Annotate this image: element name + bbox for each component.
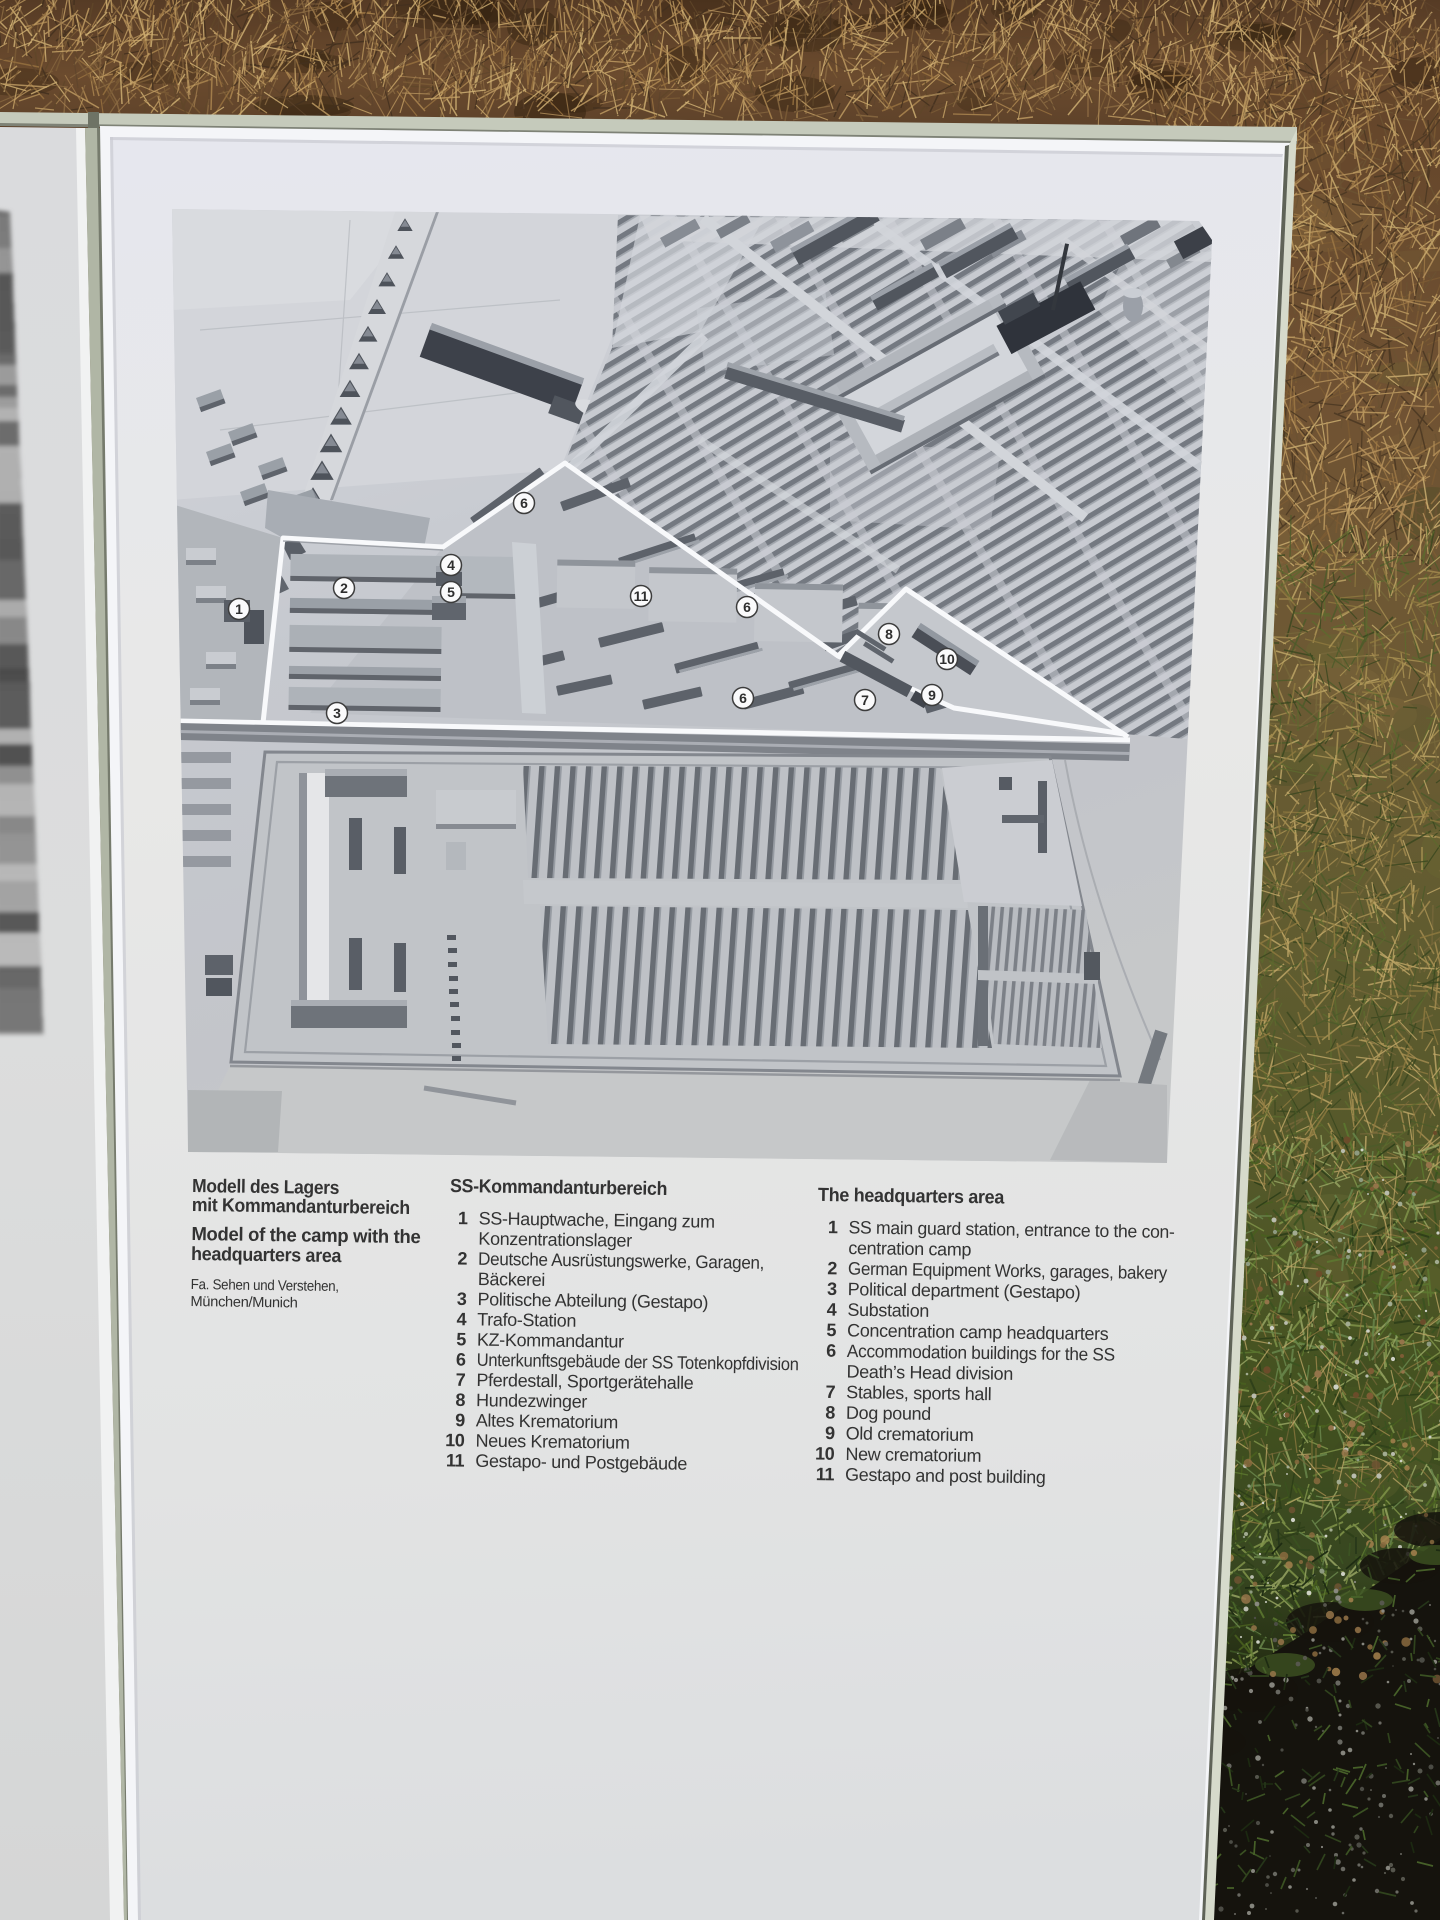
svg-text:Death’s Head division: Death’s Head division xyxy=(846,1362,1013,1384)
svg-text:KZ-Kommandantur: KZ-Kommandantur xyxy=(477,1330,624,1352)
svg-text:Stables, sports hall: Stables, sports hall xyxy=(846,1382,991,1404)
svg-text:10: 10 xyxy=(445,1430,465,1450)
svg-text:mit Kommandanturbereich: mit Kommandanturbereich xyxy=(192,1195,410,1219)
svg-text:7: 7 xyxy=(456,1370,466,1390)
svg-text:11: 11 xyxy=(816,1464,835,1484)
svg-text:headquarters area: headquarters area xyxy=(191,1244,342,1267)
svg-text:3: 3 xyxy=(827,1279,837,1299)
svg-text:3: 3 xyxy=(333,705,341,721)
svg-text:New crematorium: New crematorium xyxy=(845,1444,981,1466)
svg-text:11: 11 xyxy=(446,1450,465,1470)
svg-text:9: 9 xyxy=(825,1423,835,1443)
svg-text:8: 8 xyxy=(455,1390,465,1410)
svg-text:Konzentrationslager: Konzentrationslager xyxy=(478,1229,632,1251)
svg-text:2: 2 xyxy=(827,1258,837,1278)
svg-text:Hundezwinger: Hundezwinger xyxy=(476,1390,587,1412)
svg-text:centration camp: centration camp xyxy=(848,1238,971,1260)
svg-text:Neues Krematorium: Neues Krematorium xyxy=(475,1431,629,1453)
svg-text:Pferdestall, Sportgerätehalle: Pferdestall, Sportgerätehalle xyxy=(476,1370,694,1393)
svg-text:Gestapo and post building: Gestapo and post building xyxy=(845,1465,1046,1488)
svg-text:SS-Kommandanturbereich: SS-Kommandanturbereich xyxy=(450,1176,667,1200)
svg-text:München/Munich: München/Munich xyxy=(190,1294,297,1311)
svg-text:Fa. Sehen und Verstehen,: Fa. Sehen und Verstehen, xyxy=(191,1277,339,1295)
svg-text:The headquarters area: The headquarters area xyxy=(818,1185,1005,1209)
svg-text:10: 10 xyxy=(939,651,955,667)
svg-text:2: 2 xyxy=(340,580,348,596)
svg-text:5: 5 xyxy=(826,1320,836,1340)
svg-text:10: 10 xyxy=(815,1444,835,1464)
svg-text:6: 6 xyxy=(456,1350,466,1370)
svg-text:Bäckerei: Bäckerei xyxy=(478,1269,546,1290)
svg-text:7: 7 xyxy=(825,1382,835,1402)
svg-text:6: 6 xyxy=(743,599,751,615)
svg-text:3: 3 xyxy=(457,1289,467,1309)
svg-text:4: 4 xyxy=(447,557,455,573)
svg-text:Substation: Substation xyxy=(847,1300,929,1321)
svg-text:5: 5 xyxy=(456,1329,466,1349)
svg-text:Gestapo- und Postgebäude: Gestapo- und Postgebäude xyxy=(475,1451,687,1474)
svg-text:9: 9 xyxy=(455,1410,465,1430)
svg-text:Dog pound: Dog pound xyxy=(846,1403,931,1424)
svg-text:5: 5 xyxy=(447,584,455,600)
svg-text:Altes Krematorium: Altes Krematorium xyxy=(476,1410,618,1432)
svg-text:1: 1 xyxy=(828,1217,838,1237)
svg-text:9: 9 xyxy=(928,687,936,703)
svg-text:2: 2 xyxy=(457,1249,467,1269)
svg-text:11: 11 xyxy=(634,588,649,604)
svg-text:Trafo-Station: Trafo-Station xyxy=(477,1309,576,1330)
svg-text:6: 6 xyxy=(739,690,747,706)
svg-text:Old crematorium: Old crematorium xyxy=(846,1423,974,1445)
svg-text:8: 8 xyxy=(825,1402,835,1422)
svg-text:6: 6 xyxy=(520,495,528,511)
svg-text:7: 7 xyxy=(861,692,869,708)
svg-text:4: 4 xyxy=(456,1309,466,1329)
svg-text:1: 1 xyxy=(235,601,243,617)
svg-text:Political department (Gestapo): Political department (Gestapo) xyxy=(848,1279,1081,1302)
svg-text:4: 4 xyxy=(827,1299,837,1319)
svg-text:8: 8 xyxy=(885,626,893,642)
svg-text:Concentration camp headquarter: Concentration camp headquarters xyxy=(847,1320,1109,1344)
svg-text:6: 6 xyxy=(826,1341,836,1361)
svg-text:1: 1 xyxy=(458,1208,468,1228)
